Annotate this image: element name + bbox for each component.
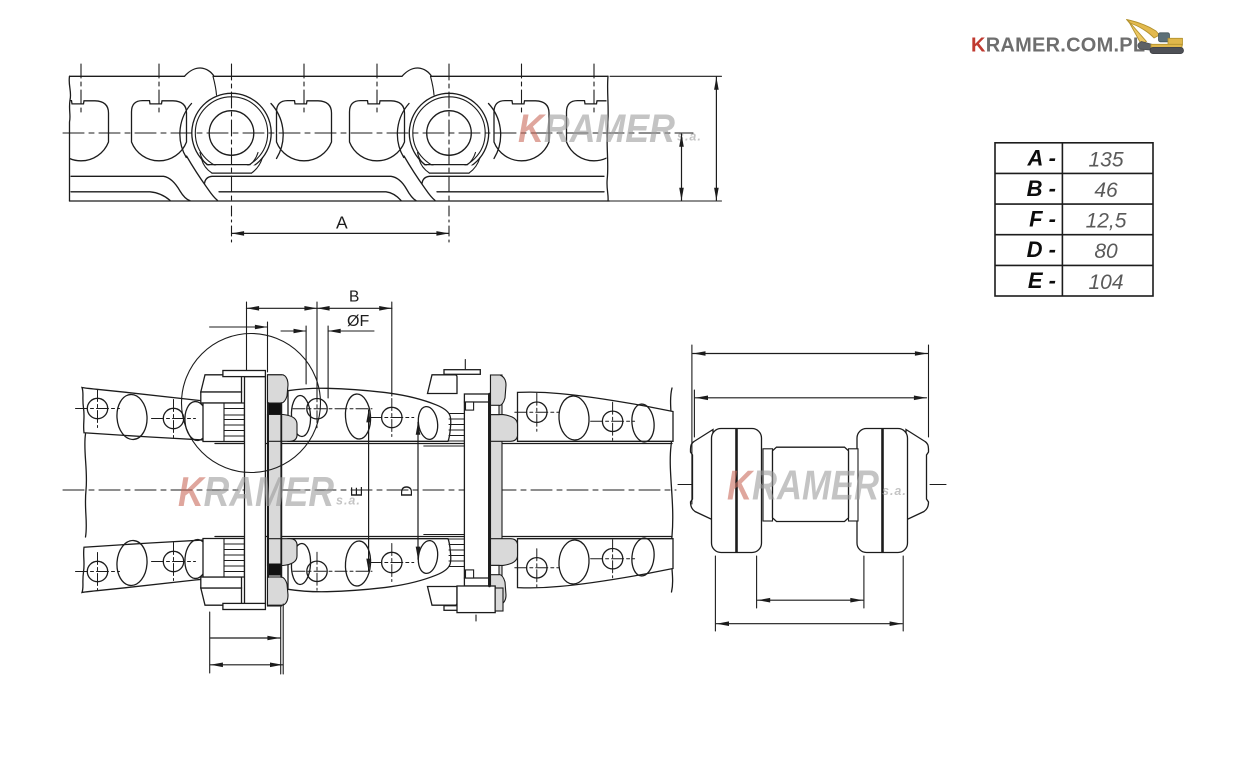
svg-text:46: 46 <box>1094 179 1118 202</box>
svg-text:104: 104 <box>1088 271 1123 294</box>
svg-text:s.a.: s.a. <box>677 129 702 143</box>
svg-text:s.a.: s.a. <box>882 484 907 498</box>
svg-text:E -: E - <box>1028 268 1056 293</box>
svg-text:A: A <box>336 213 348 233</box>
svg-text:E: E <box>349 486 366 497</box>
svg-text:KRAMER.COM.PL: KRAMER.COM.PL <box>971 35 1145 57</box>
svg-text:D -: D - <box>1027 237 1056 262</box>
svg-text:12,5: 12,5 <box>1086 210 1127 233</box>
svg-text:B -: B - <box>1027 176 1056 201</box>
svg-text:D: D <box>399 485 416 497</box>
svg-text:B: B <box>349 289 359 306</box>
svg-text:A -: A - <box>1026 145 1056 170</box>
svg-text:KRAMER: KRAMER <box>727 462 880 509</box>
svg-text:KRAMER: KRAMER <box>178 468 334 515</box>
svg-text:ØF: ØF <box>347 313 369 330</box>
svg-text:135: 135 <box>1088 148 1123 171</box>
svg-text:80: 80 <box>1094 240 1118 263</box>
svg-text:KRAMER: KRAMER <box>518 107 675 151</box>
svg-text:F -: F - <box>1029 207 1056 232</box>
